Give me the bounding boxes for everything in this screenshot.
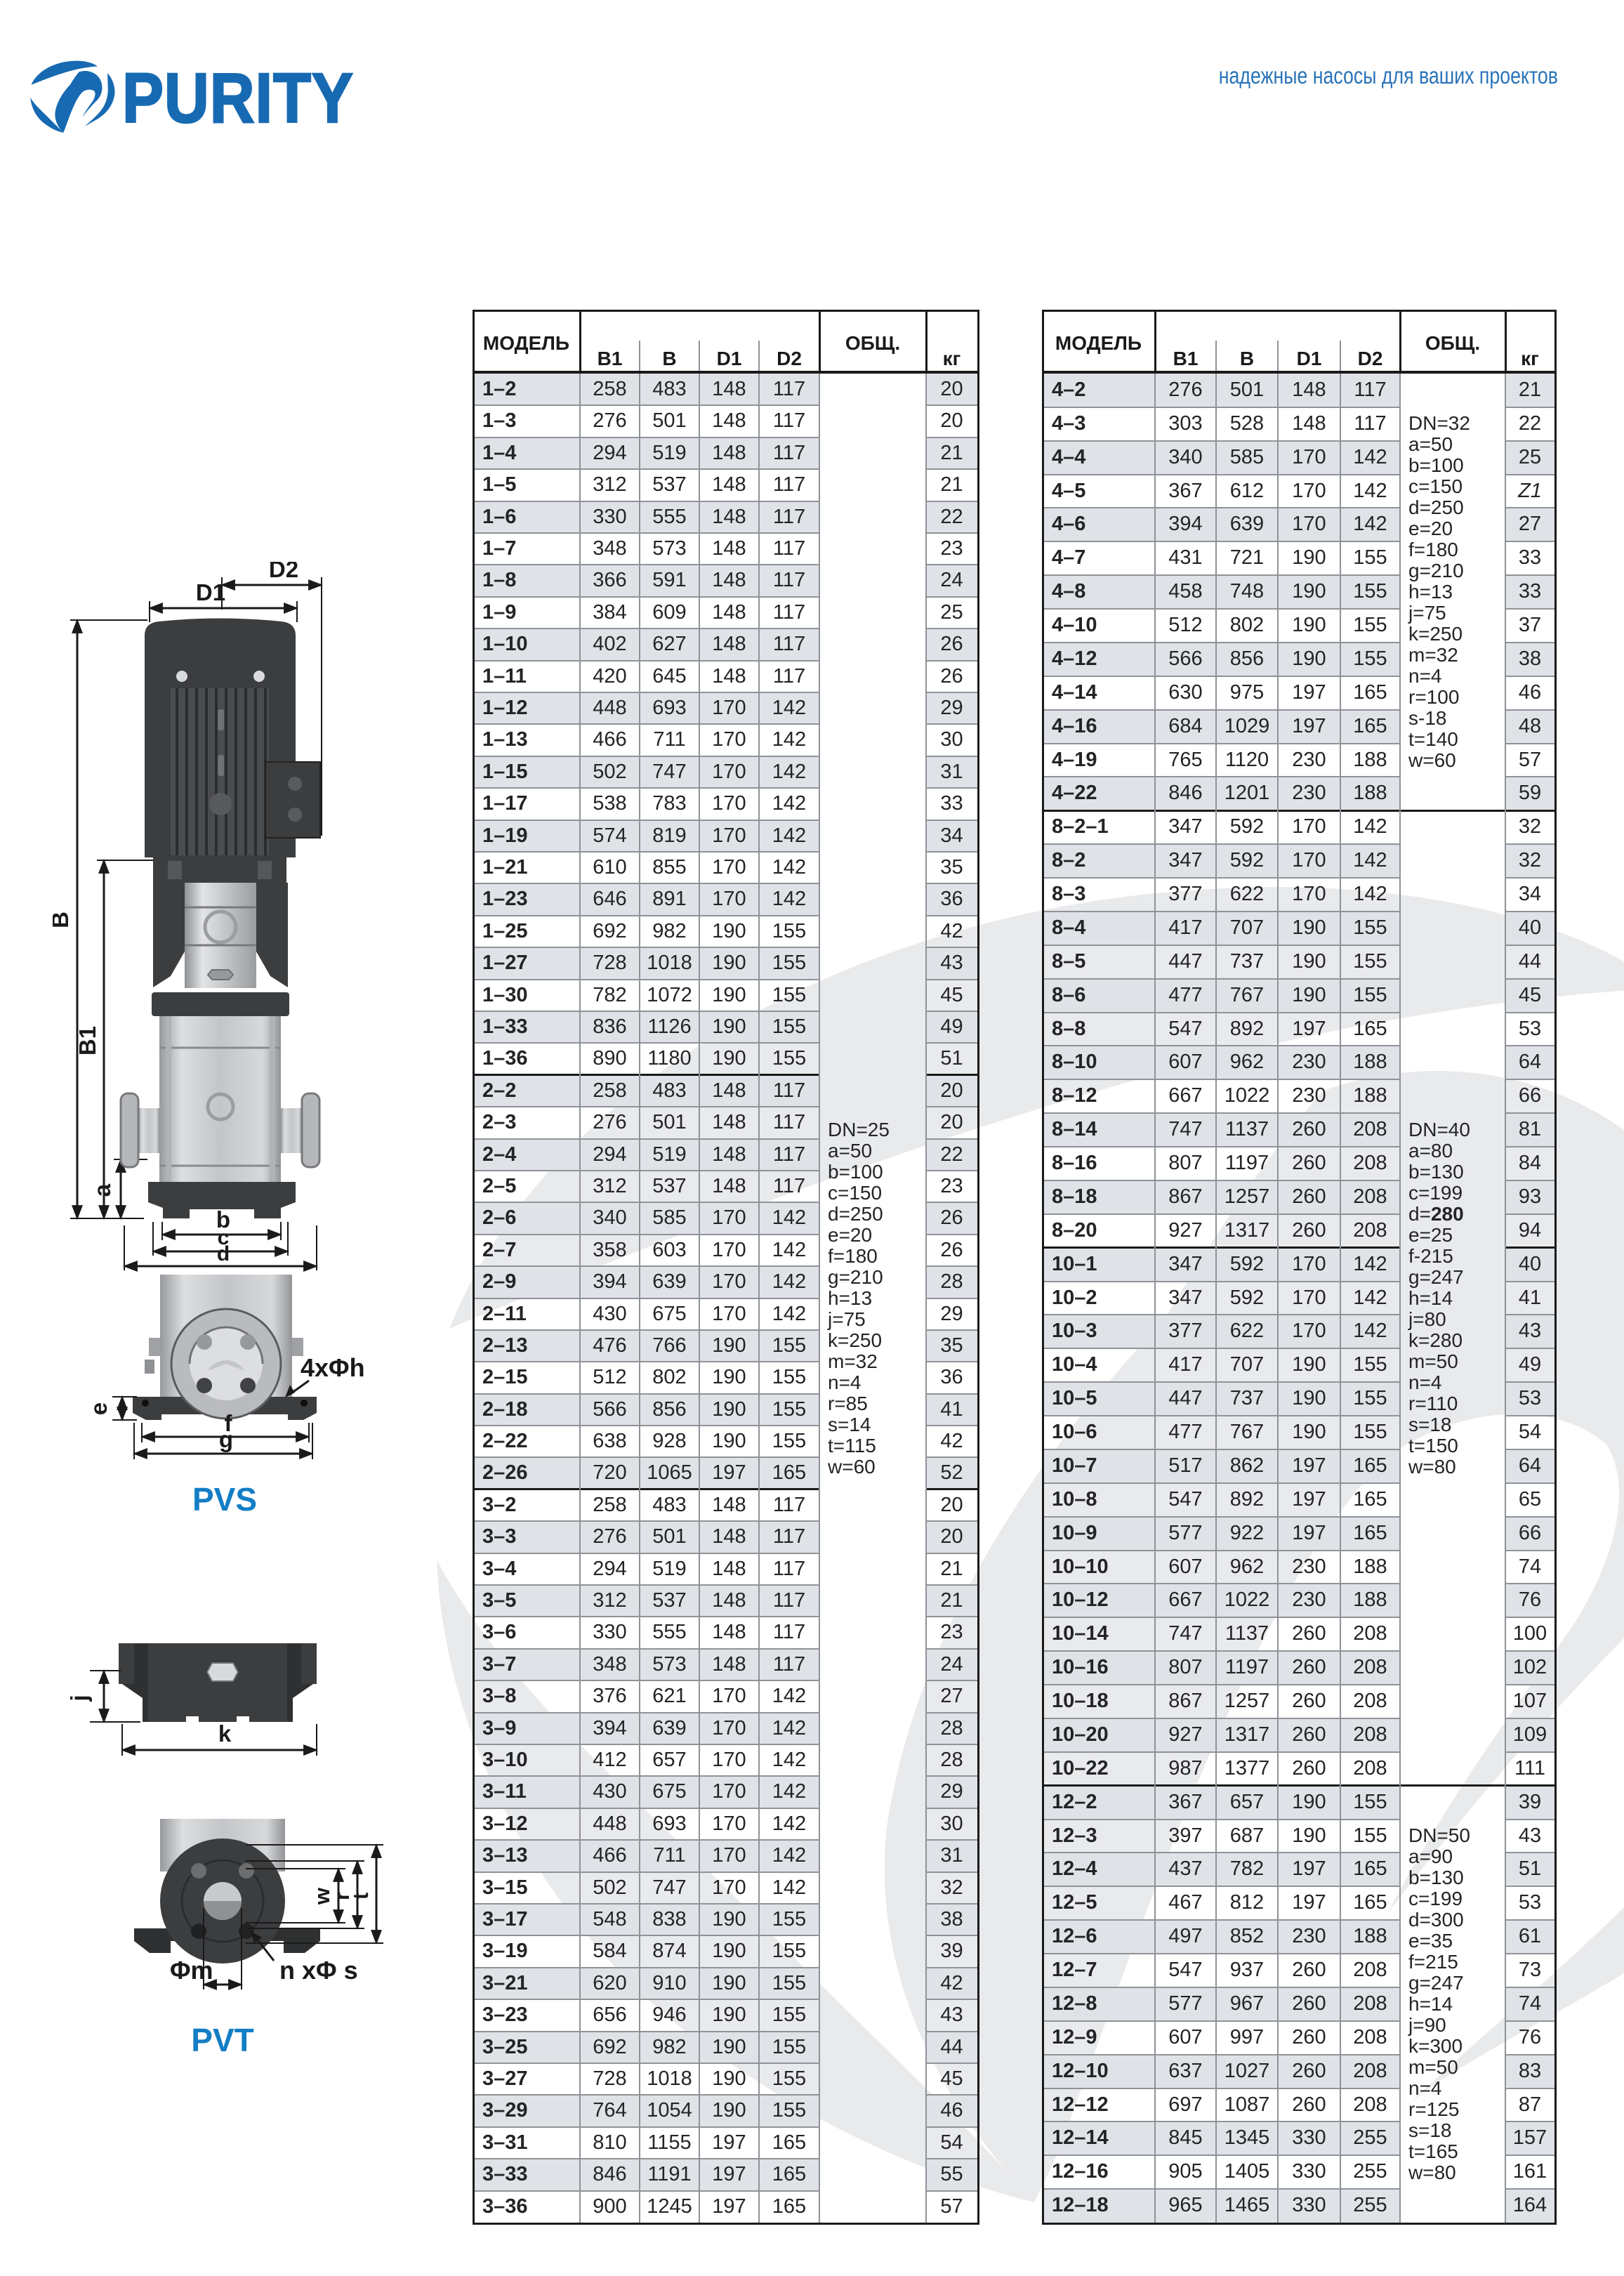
- svg-text:e: e: [91, 1402, 112, 1415]
- svg-text:D2: D2: [269, 562, 298, 582]
- svg-text:B: B: [53, 912, 73, 928]
- svg-text:Φm: Φm: [170, 1956, 213, 1985]
- svg-text:a: a: [89, 1183, 115, 1197]
- svg-text:t: t: [348, 1893, 373, 1900]
- svg-text:j: j: [70, 1695, 92, 1702]
- svg-text:k: k: [218, 1721, 232, 1747]
- svg-text:n xΦ s: n xΦ s: [279, 1956, 358, 1985]
- svg-text:4xΦh: 4xΦh: [301, 1353, 365, 1382]
- svg-text:B1: B1: [74, 1026, 100, 1055]
- svg-text:g: g: [219, 1426, 233, 1452]
- svg-text:d: d: [217, 1242, 230, 1265]
- svg-text:D1: D1: [196, 579, 225, 605]
